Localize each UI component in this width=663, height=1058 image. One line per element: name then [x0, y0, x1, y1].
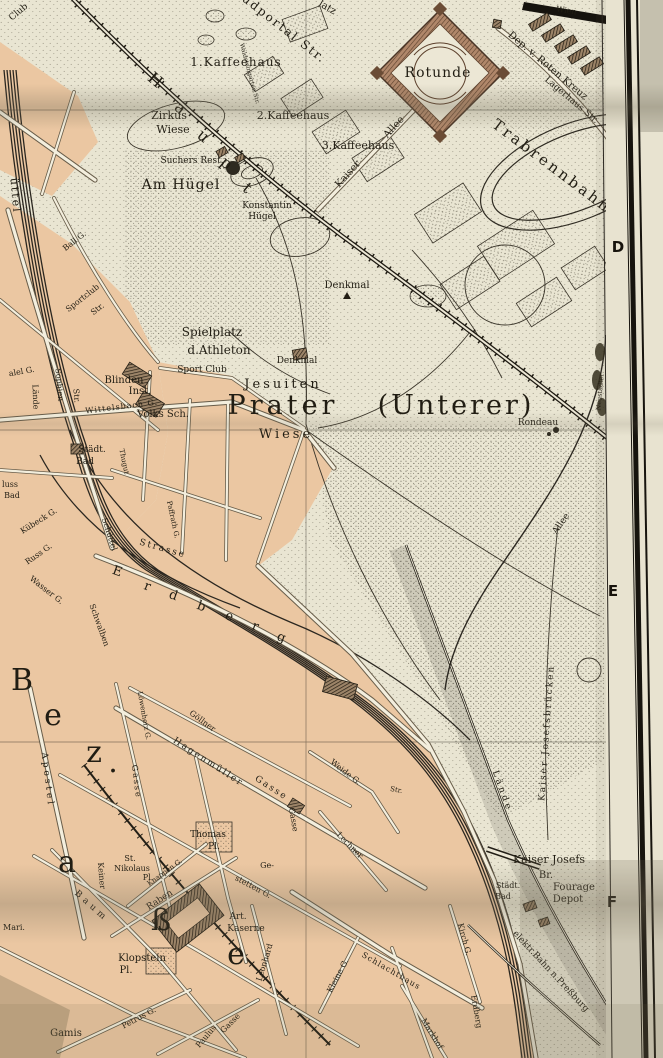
- map-label: z: [86, 735, 102, 770]
- grid-letter: D: [612, 238, 624, 256]
- map-label: B: [11, 663, 33, 698]
- map-label: d.Athleton: [187, 343, 250, 357]
- map-label: e: [44, 698, 62, 733]
- map-label: Sport Club: [177, 365, 227, 375]
- map-label: Str.: [71, 388, 81, 403]
- map-label: luss: [2, 480, 18, 489]
- map-label: Blinden: [105, 375, 145, 386]
- map-label: Klopstein: [118, 953, 166, 964]
- grid-letter: E: [608, 582, 618, 600]
- map-label: St.: [124, 854, 135, 863]
- map-label: Suchers Rest.: [160, 156, 223, 166]
- map-label: Konstantin: [242, 201, 292, 211]
- map-label: Spielplatz: [182, 325, 243, 339]
- map-label: Bad: [76, 457, 94, 467]
- map-label: Am Hügel: [141, 177, 221, 193]
- map-label: .: [108, 745, 118, 780]
- map-label: Rotunde: [405, 65, 472, 81]
- map-screenshot: Clubütteludportal Str.latz1.KaffeehausWa…: [0, 0, 663, 1058]
- map-label: Inst.: [129, 386, 152, 397]
- map-label: Denkmal: [324, 280, 369, 291]
- map-label: Pl.: [208, 842, 220, 852]
- map-label: Städt.: [78, 445, 106, 455]
- map-label: 3.Kaffeehaus: [322, 139, 395, 152]
- map-label: Denkmal: [277, 356, 318, 366]
- map-label: Hügel: [248, 212, 276, 222]
- map-label: Bad: [4, 491, 20, 500]
- map-label: 1.Kaffeehaus: [190, 55, 281, 69]
- map-label: Pl.: [119, 965, 132, 976]
- map-canvas: Clubütteludportal Str.latz1.KaffeehausWa…: [0, 0, 663, 1058]
- map-label: Lände: [31, 384, 41, 410]
- map-label: Thomas: [190, 830, 226, 840]
